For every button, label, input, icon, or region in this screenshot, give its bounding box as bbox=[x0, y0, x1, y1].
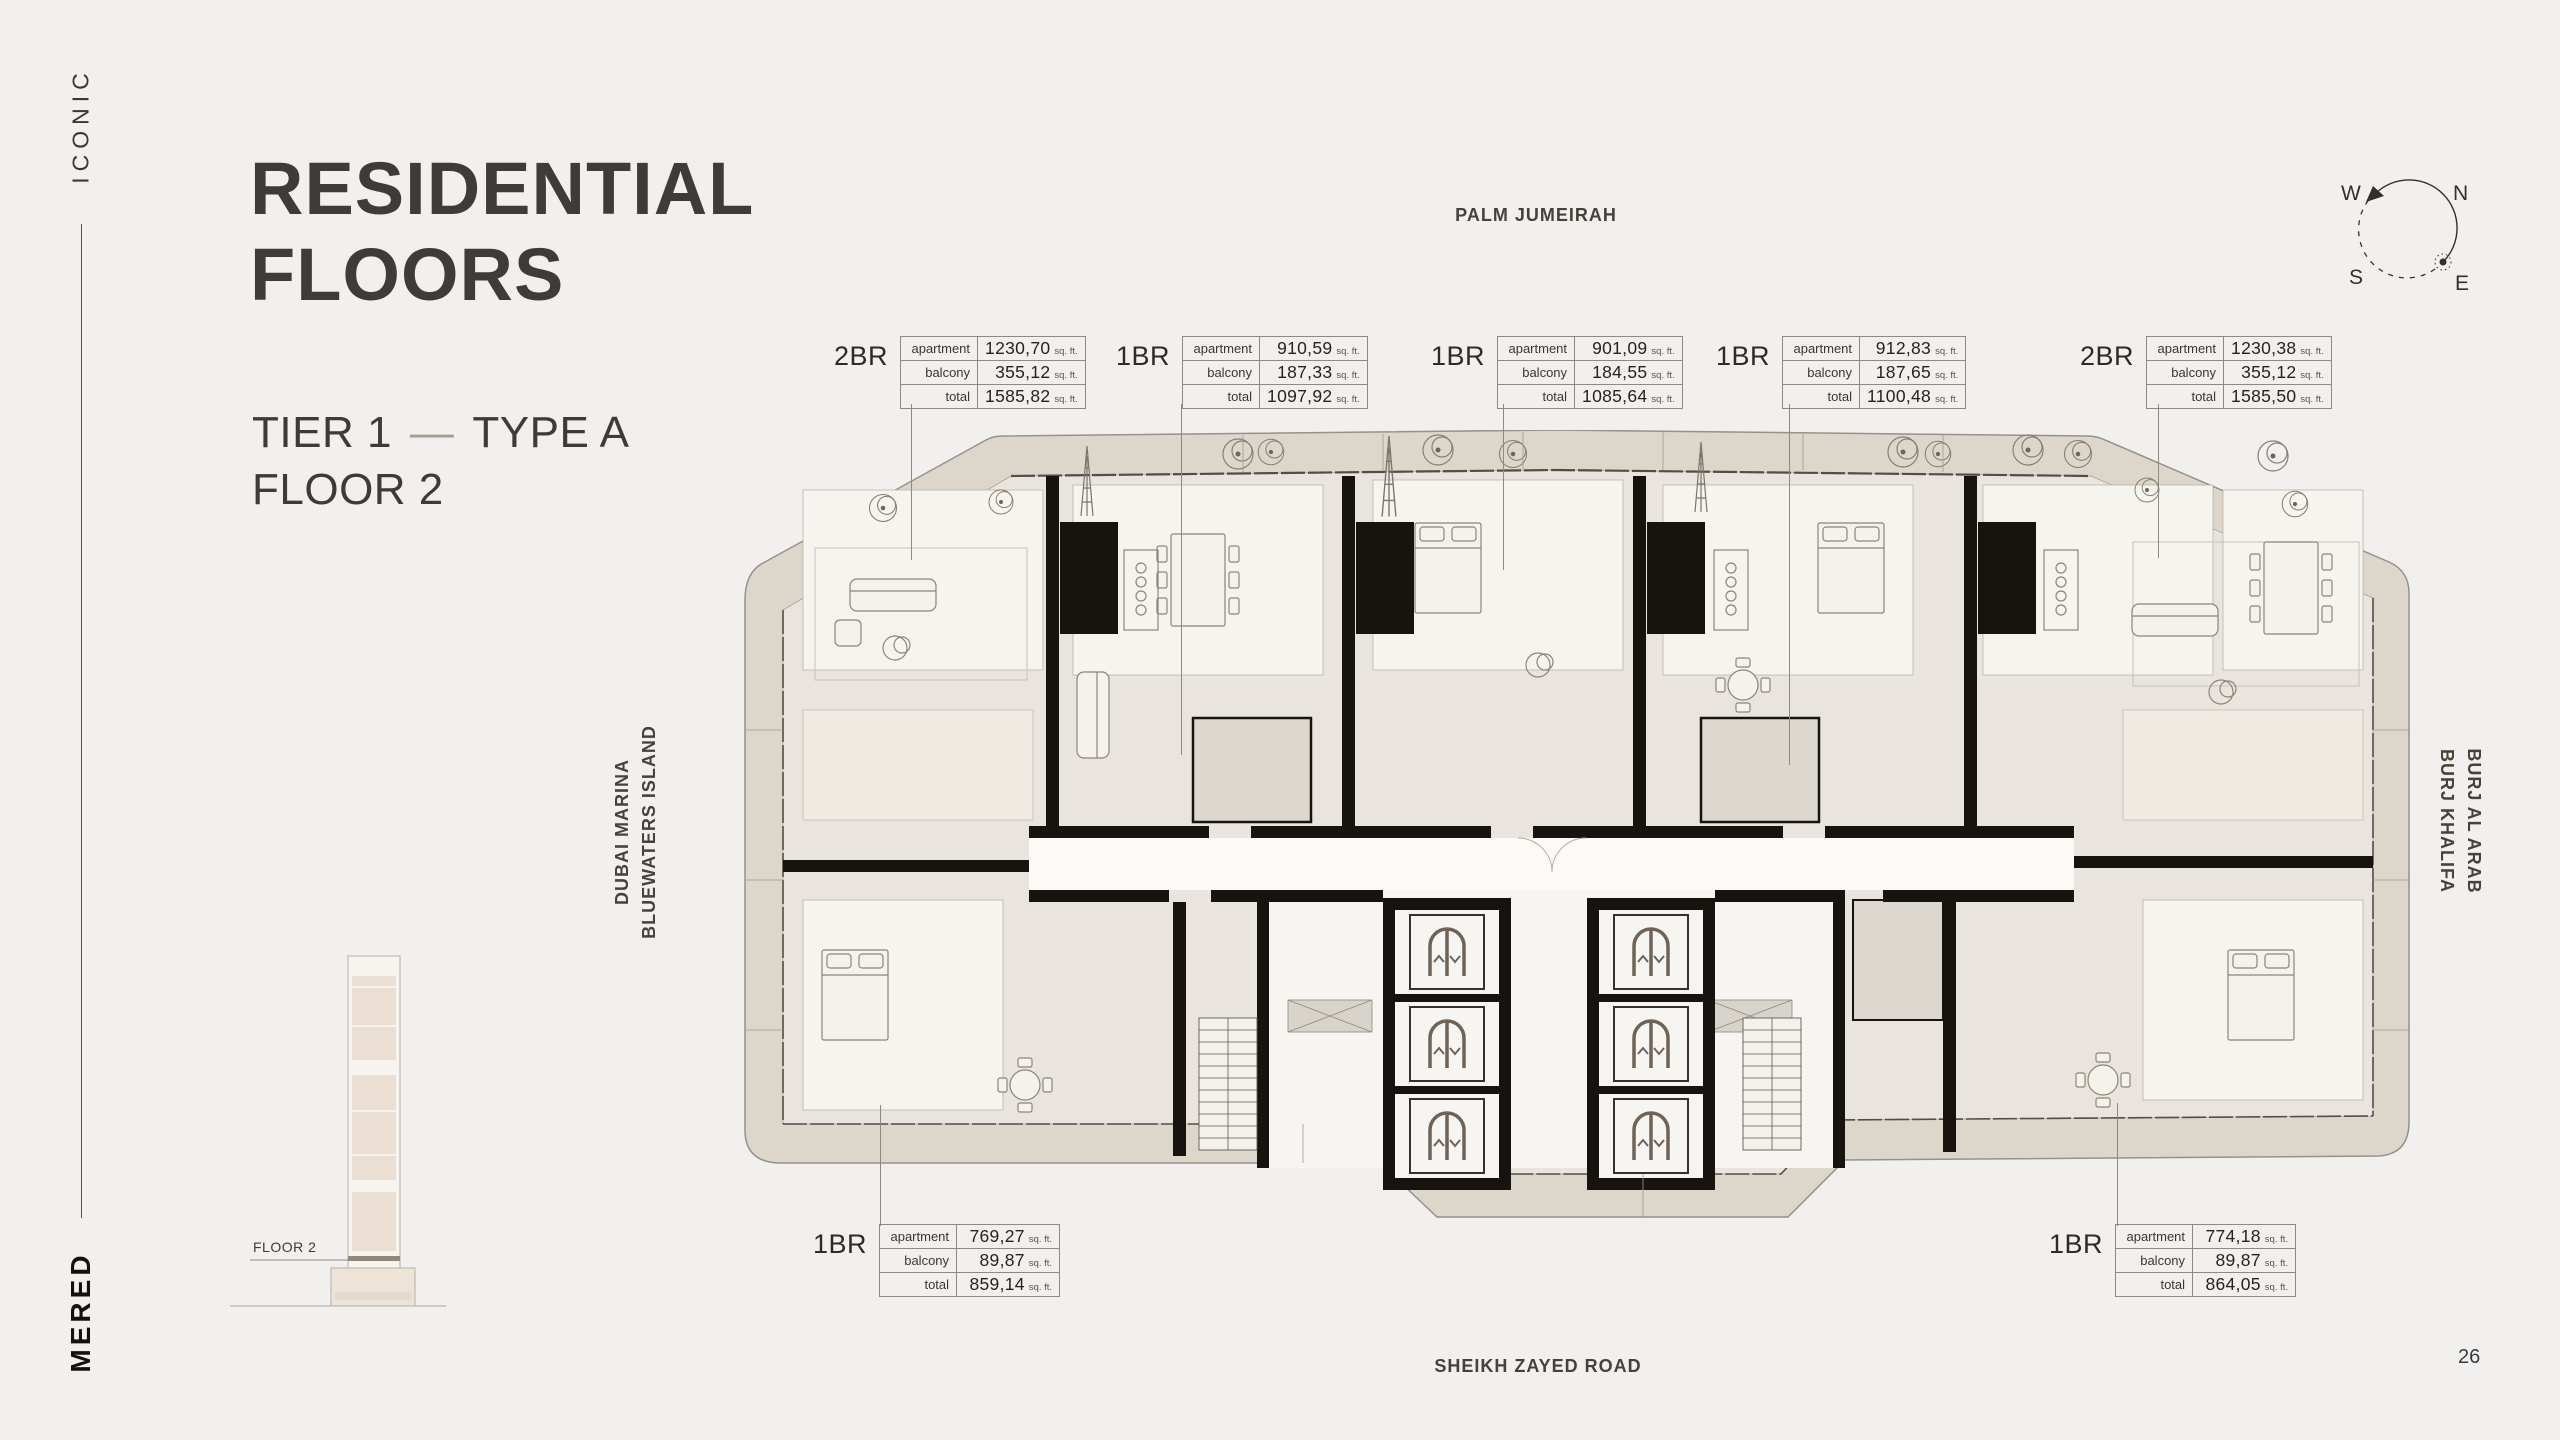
table-row: total1585,82sq. ft. bbox=[901, 385, 1086, 409]
area-table: apartment901,09sq. ft. balcony184,55sq. … bbox=[1497, 336, 1683, 409]
row-value: 355,12sq. ft. bbox=[2224, 361, 2332, 385]
row-value: 355,12sq. ft. bbox=[978, 361, 1086, 385]
row-value: 89,87sq. ft. bbox=[2193, 1249, 2296, 1273]
area-table: apartment912,83sq. ft. balcony187,65sq. … bbox=[1782, 336, 1966, 409]
floor-plan bbox=[743, 430, 2413, 1225]
row-value: 910,59sq. ft. bbox=[1260, 337, 1368, 361]
row-label: balcony bbox=[2116, 1249, 2193, 1273]
row-value: 1100,48sq. ft. bbox=[1860, 385, 1966, 409]
context-label-line: BURJ AL ARAB bbox=[2460, 711, 2487, 931]
table-row: balcony89,87sq. ft. bbox=[880, 1249, 1060, 1273]
table-row: balcony187,33sq. ft. bbox=[1183, 361, 1368, 385]
building-elevation-diagram: FLOOR 2 bbox=[228, 928, 452, 1338]
table-row: apartment910,59sq. ft. bbox=[1183, 337, 1368, 361]
armchair bbox=[835, 620, 861, 646]
row-value: 774,18sq. ft. bbox=[2193, 1225, 2296, 1249]
row-label: balcony bbox=[1183, 361, 1260, 385]
row-value: 1585,50sq. ft. bbox=[2224, 385, 2332, 409]
table-row: balcony355,12sq. ft. bbox=[901, 361, 1086, 385]
row-label: total bbox=[880, 1273, 957, 1297]
context-label-palm-jumeirah: PALM JUMEIRAH bbox=[1386, 205, 1686, 226]
table-row: apartment774,18sq. ft. bbox=[2116, 1225, 2296, 1249]
unit-card: 2BR apartment1230,38sq. ft. balcony355,1… bbox=[2080, 336, 2332, 409]
tower-floor-blocks bbox=[352, 976, 396, 1251]
compass-dashed-arc bbox=[2359, 190, 2435, 278]
row-value: 184,55sq. ft. bbox=[1575, 361, 1683, 385]
compass-east: E bbox=[2455, 272, 2469, 295]
unit-type-label: 2BR bbox=[2080, 343, 2134, 370]
row-value: 864,05sq. ft. bbox=[2193, 1273, 2296, 1297]
unit-card: 2BR apartment1230,70sq. ft. balcony355,1… bbox=[834, 336, 1086, 409]
type-label: TYPE A bbox=[472, 408, 629, 457]
unit-card: 1BR apartment774,18sq. ft. balcony89,87s… bbox=[2049, 1224, 2296, 1297]
unit-card: 1BR apartment901,09sq. ft. balcony184,55… bbox=[1431, 336, 1683, 409]
leader-line bbox=[911, 404, 912, 560]
row-value: 1230,70sq. ft. bbox=[978, 337, 1086, 361]
table-row: balcony355,12sq. ft. bbox=[2147, 361, 2332, 385]
row-label: total bbox=[901, 385, 978, 409]
compass-south: S bbox=[2349, 266, 2363, 289]
row-label: apartment bbox=[2147, 337, 2224, 361]
row-label: total bbox=[1183, 385, 1260, 409]
row-label: total bbox=[1498, 385, 1575, 409]
leader-line bbox=[2158, 404, 2159, 558]
row-value: 1230,38sq. ft. bbox=[2224, 337, 2332, 361]
context-label-burj: BURJ AL ARAB BURJ KHALIFA bbox=[2433, 711, 2487, 931]
leader-line bbox=[1181, 404, 1182, 755]
table-row: apartment1230,70sq. ft. bbox=[901, 337, 1086, 361]
area-table: apartment1230,70sq. ft. balcony355,12sq.… bbox=[900, 336, 1086, 409]
row-label: apartment bbox=[1783, 337, 1860, 361]
podium-strip bbox=[335, 1292, 411, 1300]
leader-line bbox=[2117, 1103, 2118, 1226]
area-table: apartment910,59sq. ft. balcony187,33sq. … bbox=[1182, 336, 1368, 409]
tier-label: TIER 1 bbox=[252, 408, 392, 457]
compass-west: W bbox=[2341, 182, 2361, 205]
table-row: apartment1230,38sq. ft. bbox=[2147, 337, 2332, 361]
row-label: balcony bbox=[901, 361, 978, 385]
elevator-bank-right bbox=[1587, 898, 1715, 1190]
context-label-dubai-marina: DUBAI MARINA BLUEWATERS ISLAND bbox=[609, 712, 663, 952]
row-value: 1085,64sq. ft. bbox=[1575, 385, 1683, 409]
row-label: balcony bbox=[1498, 361, 1575, 385]
compass-solid-arc bbox=[2375, 180, 2457, 262]
table-row: total1585,50sq. ft. bbox=[2147, 385, 2332, 409]
row-value: 859,14sq. ft. bbox=[957, 1273, 1060, 1297]
leader-line bbox=[1789, 404, 1790, 765]
unit-card: 1BR apartment910,59sq. ft. balcony187,33… bbox=[1116, 336, 1368, 409]
context-label-line: DUBAI MARINA bbox=[609, 712, 636, 952]
page-title-line2: FLOORS bbox=[250, 232, 754, 318]
table-row: apartment912,83sq. ft. bbox=[1783, 337, 1966, 361]
table-row: apartment769,27sq. ft. bbox=[880, 1225, 1060, 1249]
context-label-sheikh-zayed-road: SHEIKH ZAYED ROAD bbox=[1388, 1356, 1688, 1377]
context-label-line: BURJ KHALIFA bbox=[2433, 711, 2460, 931]
row-value: 769,27sq. ft. bbox=[957, 1225, 1060, 1249]
table-row: apartment901,09sq. ft. bbox=[1498, 337, 1683, 361]
row-value: 187,33sq. ft. bbox=[1260, 361, 1368, 385]
subtitle-line1: TIER 1—TYPE A bbox=[252, 404, 630, 461]
table-row: total1085,64sq. ft. bbox=[1498, 385, 1683, 409]
row-label: balcony bbox=[1783, 361, 1860, 385]
subtitle-line2: FLOOR 2 bbox=[252, 461, 630, 518]
elevator-bank-left bbox=[1383, 898, 1511, 1190]
table-row: balcony89,87sq. ft. bbox=[2116, 1249, 2296, 1273]
unit-type-label: 1BR bbox=[813, 1231, 867, 1258]
floor-label: FLOOR 2 bbox=[253, 1239, 316, 1255]
row-value: 1097,92sq. ft. bbox=[1260, 385, 1368, 409]
page-number: 26 bbox=[2458, 1346, 2480, 1369]
brand-iconic: ICONIC bbox=[68, 53, 95, 199]
leader-line bbox=[1503, 404, 1504, 570]
row-value: 187,65sq. ft. bbox=[1860, 361, 1966, 385]
brand-mered-logo: MERED bbox=[65, 1243, 97, 1381]
page-title: RESIDENTIAL FLOORS bbox=[250, 146, 754, 318]
unit-type-label: 1BR bbox=[1116, 343, 1170, 370]
highlighted-floor-marker bbox=[348, 1256, 400, 1261]
dash-separator: — bbox=[410, 408, 455, 457]
unit-card: 1BR apartment769,27sq. ft. balcony89,87s… bbox=[813, 1224, 1060, 1297]
unit-type-label: 2BR bbox=[834, 343, 888, 370]
sun-dot bbox=[2440, 259, 2447, 266]
area-table: apartment1230,38sq. ft. balcony355,12sq.… bbox=[2146, 336, 2332, 409]
row-label: balcony bbox=[2147, 361, 2224, 385]
leader-line bbox=[880, 1105, 881, 1226]
stairs-icon bbox=[1199, 1018, 1257, 1150]
unit-type-label: 1BR bbox=[1431, 343, 1485, 370]
unit-type-label: 1BR bbox=[1716, 343, 1770, 370]
area-table: apartment769,27sq. ft. balcony89,87sq. f… bbox=[879, 1224, 1060, 1297]
row-label: balcony bbox=[880, 1249, 957, 1273]
row-label: total bbox=[2116, 1273, 2193, 1297]
row-label: total bbox=[1783, 385, 1860, 409]
row-label: apartment bbox=[2116, 1225, 2193, 1249]
row-label: apartment bbox=[880, 1225, 957, 1249]
table-row: balcony187,65sq. ft. bbox=[1783, 361, 1966, 385]
stairs-icon bbox=[1743, 1018, 1801, 1150]
table-row: total864,05sq. ft. bbox=[2116, 1273, 2296, 1297]
table-row: total1100,48sq. ft. bbox=[1783, 385, 1966, 409]
podium bbox=[331, 1268, 415, 1306]
table-row: total1097,92sq. ft. bbox=[1183, 385, 1368, 409]
brand-divider-line bbox=[81, 224, 82, 1218]
row-value: 89,87sq. ft. bbox=[957, 1249, 1060, 1273]
row-value: 901,09sq. ft. bbox=[1575, 337, 1683, 361]
row-label: apartment bbox=[901, 337, 978, 361]
table-row: balcony184,55sq. ft. bbox=[1498, 361, 1683, 385]
page-subtitle: TIER 1—TYPE A FLOOR 2 bbox=[252, 404, 630, 518]
compass-icon: W N S E bbox=[2333, 152, 2485, 304]
context-label-line: BLUEWATERS ISLAND bbox=[636, 712, 663, 952]
row-label: apartment bbox=[1498, 337, 1575, 361]
table-row: total859,14sq. ft. bbox=[880, 1273, 1060, 1297]
area-table: apartment774,18sq. ft. balcony89,87sq. f… bbox=[2115, 1224, 2296, 1297]
row-value: 912,83sq. ft. bbox=[1860, 337, 1966, 361]
row-label: apartment bbox=[1183, 337, 1260, 361]
compass-north: N bbox=[2453, 182, 2468, 205]
unit-card: 1BR apartment912,83sq. ft. balcony187,65… bbox=[1716, 336, 1966, 409]
row-value: 1585,82sq. ft. bbox=[978, 385, 1086, 409]
row-label: total bbox=[2147, 385, 2224, 409]
page-title-line1: RESIDENTIAL bbox=[250, 146, 754, 232]
unit-type-label: 1BR bbox=[2049, 1231, 2103, 1258]
